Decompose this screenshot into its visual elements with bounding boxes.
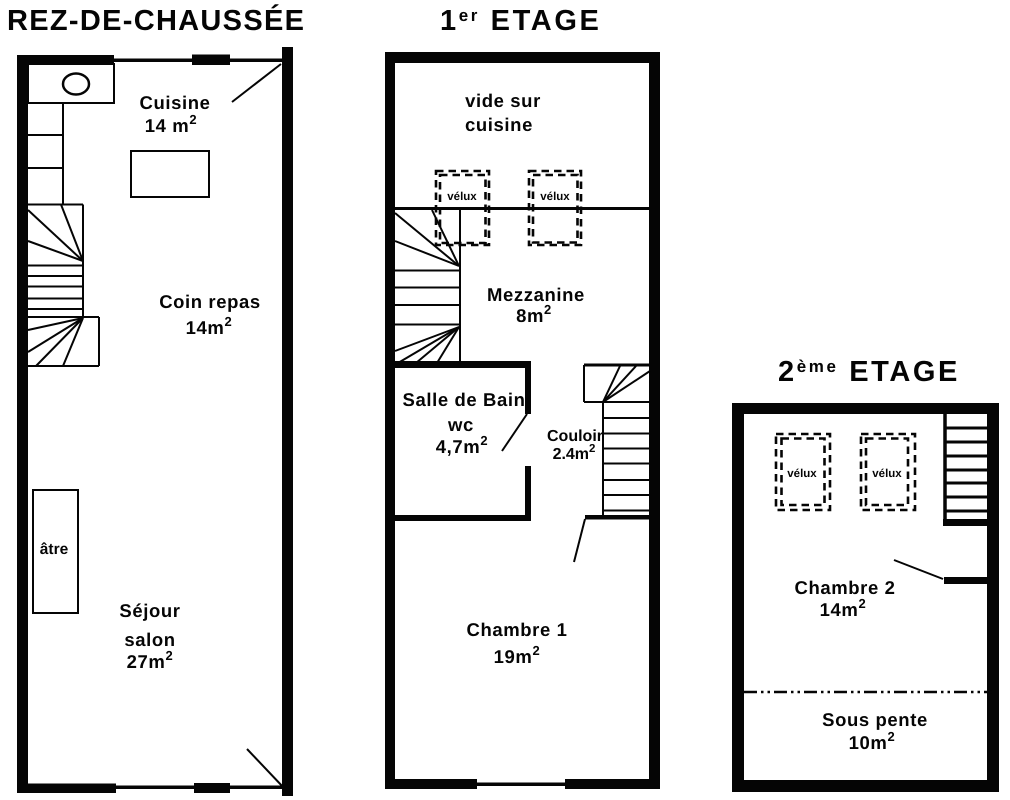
svg-text:salon: salon (124, 629, 175, 650)
svg-text:Chambre 2: Chambre 2 (794, 577, 895, 598)
svg-text:Séjour: Séjour (119, 600, 180, 621)
svg-text:vélux: vélux (540, 191, 570, 203)
svg-text:Sous pente: Sous pente (822, 709, 928, 730)
svg-text:Coin repas: Coin repas (159, 291, 261, 312)
svg-text:âtre: âtre (40, 541, 69, 558)
svg-text:cuisine: cuisine (465, 114, 533, 135)
svg-text:vide sur: vide sur (465, 90, 541, 111)
svg-text:Chambre 1: Chambre 1 (466, 619, 567, 640)
svg-text:Salle de Bain: Salle de Bain (403, 389, 526, 410)
svg-text:wc: wc (447, 414, 474, 435)
svg-text:REZ-DE-CHAUSSÉE: REZ-DE-CHAUSSÉE (7, 4, 305, 37)
svg-text:14 m2: 14 m2 (145, 112, 197, 136)
svg-text:4,7m2: 4,7m2 (436, 433, 488, 457)
svg-text:2.4m2: 2.4m2 (553, 443, 596, 463)
svg-text:vélux: vélux (872, 468, 902, 480)
svg-text:vélux: vélux (447, 191, 477, 203)
svg-text:vélux: vélux (787, 468, 817, 480)
svg-text:Mezzanine: Mezzanine (487, 284, 585, 305)
svg-text:Cuisine: Cuisine (139, 92, 210, 113)
